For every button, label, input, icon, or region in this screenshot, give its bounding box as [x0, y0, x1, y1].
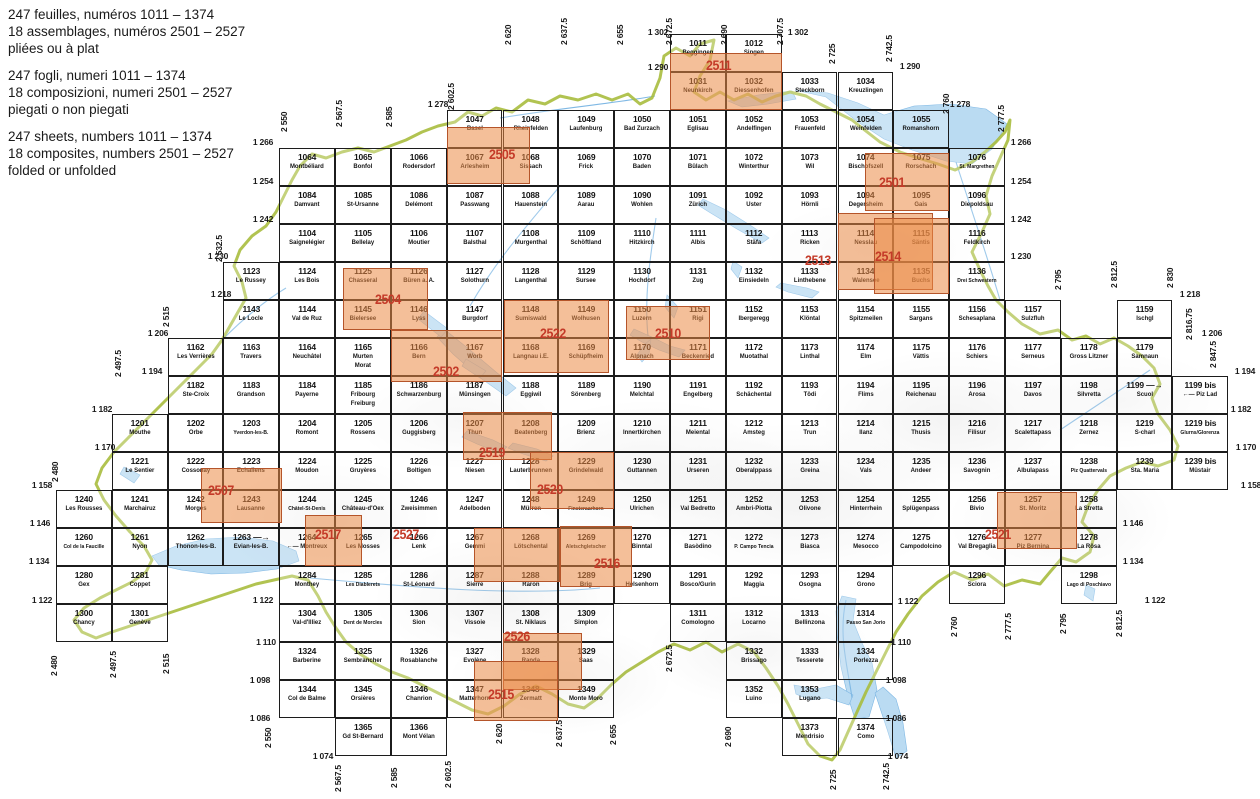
map-sheet-cell[interactable]: 1213Trun [782, 414, 838, 452]
map-sheet-cell[interactable]: 1183Grandson [223, 376, 279, 414]
map-sheet-cell[interactable]: 1176Schiers [949, 338, 1005, 376]
map-sheet-cell[interactable]: 1091Zürich [670, 186, 726, 224]
easting-coordinate-label: 2 655 [615, 25, 625, 45]
map-sheet-cell[interactable]: 1306Sion [391, 604, 447, 642]
sheet-number: 1253 [783, 495, 837, 504]
sheet-number: 1313 [783, 609, 837, 618]
sheet-name: Lugano [784, 696, 835, 703]
map-sheet-cell[interactable]: 1198Silvretta [1061, 376, 1117, 414]
sheet-number: 1218 [1062, 419, 1116, 428]
map-sheet-cell[interactable]: 1274Mesocco [838, 528, 894, 566]
easting-coordinate-label: 2 690 [719, 25, 729, 45]
northing-coordinate-label: 1 182 [80, 404, 124, 414]
sheet-number: 1246 [392, 495, 446, 504]
map-sheet-cell[interactable]: 1107Balsthal [447, 224, 503, 262]
map-sheet-cell[interactable]: 1241Marchairuz [112, 490, 168, 528]
map-sheet-cell[interactable]: 1209Brienz [558, 414, 614, 452]
map-sheet-cell[interactable]: 1175Vättis [893, 338, 949, 376]
sheet-number: 1086 [392, 191, 446, 200]
sheet-number: 1054 [839, 115, 893, 124]
map-sheet-cell[interactable]: 1109Schöftland [558, 224, 614, 262]
map-sheet-cell[interactable]: 1179Samnaun [1117, 338, 1173, 376]
sheet-number: 1374 [839, 723, 893, 732]
map-sheet-cell[interactable]: 1070Baden [614, 148, 670, 186]
map-sheet-cell[interactable]: 1127Solothurn [447, 262, 503, 300]
sheet-name: Orbe [170, 430, 221, 437]
map-sheet-cell[interactable]: 1104Saignelégier [279, 224, 335, 262]
map-sheet-cell[interactable]: 1112Stäfa [726, 224, 782, 262]
sheet-number: 1214 [839, 419, 893, 428]
sheet-name: Glurns/Glorenza [1177, 430, 1224, 437]
map-sheet-cell[interactable]: 1154Spitzmeilen [838, 300, 894, 338]
map-sheet-cell[interactable]: 1211Meiental [670, 414, 726, 452]
sheet-number: 1222 [169, 457, 223, 466]
map-sheet-cell[interactable]: 1089Aarau [558, 186, 614, 224]
sheet-number: 1066 [392, 153, 446, 162]
map-sheet-cell[interactable]: 1235Andeer [893, 452, 949, 490]
map-sheet-cell[interactable]: 1177Serneus [1005, 338, 1061, 376]
sheet-number: 1260 [57, 533, 111, 542]
map-sheet-cell[interactable]: 1250Ulrichen [614, 490, 670, 528]
map-sheet-cell[interactable]: 1189Sörenberg [558, 376, 614, 414]
sheet-name: Le Locle [226, 316, 277, 323]
sheet-name: Sursee [561, 278, 612, 285]
map-sheet-cell[interactable]: 1087Passwang [447, 186, 503, 224]
map-sheet-cell[interactable]: 1050Bad Zurzach [614, 110, 670, 148]
sheet-name: Müstair [1175, 468, 1226, 475]
map-sheet-cell[interactable]: 1192Schächental [726, 376, 782, 414]
composite-number: 2516 [594, 556, 620, 571]
sheet-number: 1191 [671, 381, 725, 390]
map-sheet-cell[interactable]: 1162Les Verrières [168, 338, 224, 376]
sheet-name: Thonon-les-B. [170, 544, 221, 551]
map-sheet-cell[interactable]: 1195Reichenau [893, 376, 949, 414]
sheet-number: 1093 [783, 191, 837, 200]
map-sheet-cell[interactable]: 1285Les Diablerets [335, 566, 391, 604]
northing-coordinate-label: 1 110 [244, 637, 288, 647]
map-sheet-cell[interactable]: 1071Bülach [670, 148, 726, 186]
map-sheet-cell[interactable]: 1218Zernez [1061, 414, 1117, 452]
sheet-name: Rodersdorf [393, 164, 444, 171]
sheet-number: 1204 [280, 419, 334, 428]
map-sheet-cell[interactable]: 1188Eggiwil [503, 376, 559, 414]
sheet-name: Amsteg [728, 430, 779, 437]
map-sheet-cell[interactable]: 1221Le Sentier [112, 452, 168, 490]
sheet-number: 1206 [392, 419, 446, 428]
sheet-name: Sulzfluh [1007, 316, 1058, 323]
map-sheet-cell[interactable]: 1204Romont [279, 414, 335, 452]
composite-box[interactable] [530, 452, 614, 509]
sheet-name: Val Bregaglia [951, 544, 1002, 551]
map-sheet-cell[interactable]: 1215Thusis [893, 414, 949, 452]
map-sheet-cell[interactable]: 1054Weinfelden [838, 110, 894, 148]
map-sheet-cell[interactable]: 1300Chancy [56, 604, 112, 642]
map-sheet-cell[interactable]: 1069Frick [558, 148, 614, 186]
map-sheet-cell[interactable]: 1110Hitzkirch [614, 224, 670, 262]
map-sheet-cell[interactable]: 1185FribourgFreiburg [335, 376, 391, 414]
map-sheet-cell[interactable]: 1312Locarno [726, 604, 782, 642]
map-sheet-cell[interactable]: 1247Adelboden [447, 490, 503, 528]
sheet-name: Guggisberg [393, 430, 444, 437]
sheet-number: 1298 [1062, 571, 1116, 580]
map-sheet-cell[interactable]: 1346Chanrion [391, 680, 447, 718]
sheet-name: Châtel-St-Denis [283, 506, 330, 513]
sheet-number: 1011 [671, 39, 725, 48]
easting-coordinate-label: 2 480 [50, 462, 60, 482]
composite-number: 2505 [489, 147, 515, 162]
sheet-number: 1133 [783, 267, 837, 276]
map-sheet-cell[interactable]: 1108Murgenthal [503, 224, 559, 262]
map-sheet-cell[interactable]: 1049Laufenburg [558, 110, 614, 148]
map-sheet-cell[interactable]: 1092Uster [726, 186, 782, 224]
sheet-name: Nyon [114, 544, 165, 551]
sheet-name: Lenk [393, 544, 444, 551]
sheet-name: Ibergeregg [728, 316, 779, 323]
northing-coordinate-label: 1 266 [241, 137, 285, 147]
map-sheet-cell[interactable]: 1106Moutier [391, 224, 447, 262]
sheet-name: S-charl [1119, 430, 1170, 437]
sheet-number: 1129 [559, 267, 613, 276]
sheet-name: Ste-Croix [170, 392, 221, 399]
sheet-name: Campodolcino [896, 544, 947, 551]
map-sheet-cell[interactable]: 1116Feldkirch [949, 224, 1005, 262]
map-sheet-cell[interactable]: 1205Rossens [335, 414, 391, 452]
sheet-number: 1072 [727, 153, 781, 162]
map-sheet-cell[interactable]: 1130Hochdorf [614, 262, 670, 300]
map-sheet-cell[interactable]: 1136Drei Schwestern [949, 262, 1005, 300]
map-sheet-cell[interactable]: 1233Greina [782, 452, 838, 490]
sheet-name: Le Russey [226, 278, 277, 285]
map-sheet-cell[interactable]: 1353Lugano [782, 680, 838, 718]
sheet-name: Winterthur [728, 164, 779, 171]
map-sheet-cell[interactable]: 1234Vals [838, 452, 894, 490]
map-sheet-cell[interactable]: 1326Rosablanche [391, 642, 447, 680]
map-sheet-cell[interactable]: 1333Tesserete [782, 642, 838, 680]
map-sheet-cell[interactable]: 1191Engelberg [670, 376, 726, 414]
sheet-number: 1108 [504, 229, 558, 238]
map-sheet-cell[interactable]: 1232Oberalppass [726, 452, 782, 490]
map-sheet-cell[interactable]: 1253Olivone [782, 490, 838, 528]
map-sheet-cell[interactable]: 1172Muotathal [726, 338, 782, 376]
map-sheet-cell[interactable]: 1111Albis [670, 224, 726, 262]
map-sheet-cell[interactable]: 1224Moudon [279, 452, 335, 490]
map-sheet-cell[interactable]: 1291Bosco/Gurin [670, 566, 726, 604]
sheet-number: 1033 [783, 77, 837, 86]
map-sheet-cell[interactable]: 1165MurtenMorat [335, 338, 391, 376]
map-sheet-cell[interactable]: 1199 —→Scuol [1117, 376, 1173, 414]
sheet-name: Einsiedeln [728, 278, 779, 285]
sheet-number: 1239 [1118, 457, 1172, 466]
easting-coordinate-label: 2 602.5 [446, 83, 456, 110]
sheet-name: Boltigen [393, 468, 444, 475]
sheet-name: Bonfol [337, 164, 388, 171]
map-sheet-cell[interactable]: 1153Klöntal [782, 300, 838, 338]
sheet-number: 1231 [671, 457, 725, 466]
map-sheet-cell[interactable]: 1155Sargans [893, 300, 949, 338]
map-sheet-cell[interactable]: 1132Einsiedeln [726, 262, 782, 300]
map-sheet-cell[interactable]: 1251Val Bedretto [670, 490, 726, 528]
map-sheet-cell[interactable]: 1096Diepoldsau [949, 186, 1005, 224]
northing-coordinate-label: 1 134 [17, 556, 61, 566]
sheet-number: 1210 [615, 419, 669, 428]
sheet-name: Wil [784, 164, 835, 171]
map-sheet-cell[interactable]: 1325Sembrancher [335, 642, 391, 680]
sheet-number: 1223 [224, 457, 278, 466]
sheet-number: 1352 [727, 685, 781, 694]
sheet-number: 1092 [727, 191, 781, 200]
map-sheet-cell[interactable]: 1088Hauenstein [503, 186, 559, 224]
map-sheet-cell[interactable]: 1156Schesaplana [949, 300, 1005, 338]
map-sheet-cell[interactable]: 1252Ambri-Piotta [726, 490, 782, 528]
composite-number: 2507 [208, 483, 234, 498]
map-sheet-cell[interactable]: 1344Col de Balme [279, 680, 335, 718]
map-sheet-cell[interactable]: 1214Ilanz [838, 414, 894, 452]
sheet-number: 1219 bis [1173, 419, 1227, 428]
sheet-number: 1217 [1006, 419, 1060, 428]
map-sheet-cell[interactable]: 1206Guggisberg [391, 414, 447, 452]
sheet-name: Sargans [896, 316, 947, 323]
map-sheet-cell[interactable]: 1184Payerne [279, 376, 335, 414]
sheet-number: 1157 [1006, 305, 1060, 314]
sheet-name: Greina [784, 468, 835, 475]
map-sheet-cell[interactable]: 1105Bellelay [335, 224, 391, 262]
sheet-name: Davos [1007, 392, 1058, 399]
sheet-name: Trun [784, 430, 835, 437]
map-sheet-cell[interactable]: 1239Sta. Maria [1117, 452, 1173, 490]
map-sheet-cell[interactable]: 1225Gruyères [335, 452, 391, 490]
map-sheet-cell[interactable]: 1292Maggia [726, 566, 782, 604]
sheet-number: 1236 [950, 457, 1004, 466]
map-sheet-cell[interactable]: 1190Melchtal [614, 376, 670, 414]
sheet-number: 1132 [727, 267, 781, 276]
map-sheet-cell[interactable]: 1131Zug [670, 262, 726, 300]
map-sheet-cell[interactable]: 1203Yverdon-les-B. [223, 414, 279, 452]
map-sheet-cell[interactable]: 1275Campodolcino [893, 528, 949, 566]
map-sheet-cell[interactable]: 1261Nyon [112, 528, 168, 566]
sheet-number: 1163 [224, 343, 278, 352]
sheet-number: 1291 [671, 571, 725, 580]
map-sheet-cell[interactable]: 1273Biasca [782, 528, 838, 566]
sheet-name: Mont Vélan [393, 734, 444, 741]
map-sheet-cell[interactable]: 1284Monthey [279, 566, 335, 604]
map-sheet-cell[interactable]: 1053Frauenfeld [782, 110, 838, 148]
map-sheet-cell[interactable]: 1076St. Margrethen [949, 148, 1005, 186]
sheet-number: 1174 [839, 343, 893, 352]
map-sheet-cell[interactable]: 1144Val de Ruz [279, 300, 335, 338]
sheet-name: Luino [728, 696, 779, 703]
map-sheet-cell[interactable]: 1324Barberine [279, 642, 335, 680]
sheet-name: Mouthe [114, 430, 165, 437]
map-sheet-cell[interactable]: 1263 —→Evian-les-B. [223, 528, 279, 566]
map-sheet-cell[interactable]: 1073Wil [782, 148, 838, 186]
sheet-name: Frick [561, 164, 612, 171]
map-sheet-cell[interactable]: 1152Ibergeregg [726, 300, 782, 338]
map-sheet-cell[interactable]: 1033Steckborn [782, 72, 838, 110]
sheet-number: 1327 [448, 647, 502, 656]
composite-box[interactable] [474, 528, 560, 582]
map-sheet-cell[interactable]: 1129Sursee [558, 262, 614, 300]
map-sheet-cell[interactable]: 1238Piz Quattervals [1061, 452, 1117, 490]
easting-coordinate-label: 2 812.5 [1109, 261, 1119, 288]
composite-number: 2517 [315, 527, 341, 542]
map-sheet-cell[interactable]: 1164Neuchâtel [279, 338, 335, 376]
map-sheet-cell[interactable]: 1174Elm [838, 338, 894, 376]
map-sheet-cell[interactable]: 1173Linthal [782, 338, 838, 376]
sheet-name: Thusis [896, 430, 947, 437]
sheet-name: Gex [58, 582, 109, 589]
map-sheet-cell[interactable]: 1239 bisMüstair [1172, 452, 1228, 490]
easting-coordinate-label: 2 620 [494, 724, 504, 744]
composite-box[interactable] [474, 661, 559, 721]
sheet-number: 1345 [336, 685, 390, 694]
map-sheet-cell[interactable]: 1084Damvant [279, 186, 335, 224]
map-sheet-cell[interactable]: 1196Arosa [949, 376, 1005, 414]
sheet-name: Les Diablerets [339, 582, 386, 589]
easting-coordinate-label: 2 742.5 [884, 35, 894, 62]
map-sheet-cell[interactable]: 1332Brissago [726, 642, 782, 680]
sheet-number: 1366 [392, 723, 446, 732]
sheet-name: Schächental [728, 392, 779, 399]
map-sheet-cell[interactable]: 1064Montbéliard [279, 148, 335, 186]
map-sheet-cell[interactable]: 1313Bellinzona [782, 604, 838, 642]
map-sheet-cell[interactable]: 1086Delémont [391, 186, 447, 224]
sheet-number: 1143 [224, 305, 278, 314]
sheet-name: Albulapass [1007, 468, 1058, 475]
easting-coordinate-label: 2 497.5 [108, 651, 118, 678]
map-sheet-cell[interactable]: 1231Urseren [670, 452, 726, 490]
map-sheet-cell[interactable]: 1230Guttannen [614, 452, 670, 490]
sheet-number: 1012 [727, 39, 781, 48]
sheet-name: Schesaplana [951, 316, 1002, 323]
sheet-name: Vals [840, 468, 891, 475]
sheet-name: Gross Litzner [1063, 354, 1114, 361]
map-sheet-cell[interactable]: 1093Hörnli [782, 186, 838, 224]
map-sheet-cell[interactable]: 1255Splügenpass [893, 490, 949, 528]
map-sheet-cell[interactable]: 1366Mont Vélan [391, 718, 447, 756]
map-sheet-cell[interactable]: 1305Dent de Morcles [335, 604, 391, 642]
map-sheet-cell[interactable]: 1216Filisur [949, 414, 1005, 452]
sheet-number: 1193 [783, 381, 837, 390]
map-sheet-cell[interactable]: 1294Grono [838, 566, 894, 604]
composite-number: 2511 [706, 58, 731, 73]
map-sheet-cell[interactable]: 1197Davos [1005, 376, 1061, 414]
sheet-name: Rosablanche [393, 658, 444, 665]
map-sheet-cell[interactable]: 1090Wohlen [614, 186, 670, 224]
sheet-number: 1251 [671, 495, 725, 504]
northing-coordinate-label: 1 254 [999, 176, 1043, 186]
map-sheet-cell[interactable]: 1307Vissoie [447, 604, 503, 642]
map-sheet-cell[interactable]: 1085St-Ursanne [335, 186, 391, 224]
sheet-number: 1113 [783, 229, 837, 238]
map-sheet-cell[interactable]: 1240Les Rousses [56, 490, 112, 528]
map-sheet-cell[interactable]: 1311Comologno [670, 604, 726, 642]
map-sheet-cell[interactable]: 1182Ste-Croix [168, 376, 224, 414]
map-sheet-cell[interactable]: 1226Boltigen [391, 452, 447, 490]
easting-coordinate-label: 2 725 [828, 770, 838, 790]
sheet-number: 1256 [950, 495, 1004, 504]
map-sheet-cell[interactable]: 1286St-Léonard [391, 566, 447, 604]
map-sheet-cell[interactable]: 1194Flims [838, 376, 894, 414]
map-sheet-cell[interactable]: 1373Mendrisio [782, 718, 838, 756]
sheet-number: 1096 [950, 191, 1004, 200]
map-sheet-cell[interactable]: 1262Thonon-les-B. [168, 528, 224, 566]
map-sheet-cell[interactable]: 1212Amsteg [726, 414, 782, 452]
map-sheet-cell[interactable]: 1066Rodersdorf [391, 148, 447, 186]
sheet-number: 1176 [950, 343, 1004, 352]
map-sheet-cell[interactable]: 1260Col de la Faucille [56, 528, 112, 566]
map-sheet-cell[interactable]: 1143Le Locle [223, 300, 279, 338]
map-sheet-cell[interactable]: 1272P. Campo Tencia [726, 528, 782, 566]
map-sheet-cell[interactable]: 1219 bisGlurns/Glorenza [1172, 414, 1228, 452]
map-sheet-cell[interactable]: 1124Les Bois [279, 262, 335, 300]
map-sheet-cell[interactable]: 1217Scalettapass [1005, 414, 1061, 452]
map-sheet-cell[interactable]: 1280Gex [56, 566, 112, 604]
map-sheet-cell[interactable]: 1055Romanshorn [893, 110, 949, 148]
sheet-number: 1212 [727, 419, 781, 428]
map-sheet-cell[interactable]: 1210Innertkirchen [614, 414, 670, 452]
easting-coordinate-label: 2 480 [49, 656, 59, 676]
sheet-name: Val-d'Illiez [282, 620, 333, 627]
map-sheet-cell[interactable]: 1052Andelfingen [726, 110, 782, 148]
map-sheet-cell[interactable]: 1236Savognin [949, 452, 1005, 490]
sheet-number: 1159 [1118, 305, 1172, 314]
map-sheet-cell[interactable]: 1352Luino [726, 680, 782, 718]
map-sheet-cell[interactable]: 1271Basòdino [670, 528, 726, 566]
map-sheet-cell[interactable]: 1051Eglisau [670, 110, 726, 148]
map-sheet-cell[interactable]: 1281Coppet [112, 566, 168, 604]
map-sheet-cell[interactable]: 1157Sulzfluh [1005, 300, 1061, 338]
sheet-name: Val de Ruz [282, 316, 333, 323]
map-sheet-cell[interactable]: 1246Zweisimmen [391, 490, 447, 528]
map-sheet-cell[interactable]: 1293Osogna [782, 566, 838, 604]
map-sheet-cell[interactable]: 1193Tödi [782, 376, 838, 414]
sheet-name: Samnaun [1119, 354, 1170, 361]
northing-coordinate-label: 1 086 [874, 713, 918, 723]
map-sheet-cell[interactable]: 1072Winterthur [726, 148, 782, 186]
map-sheet-cell[interactable]: 1345Orsières [335, 680, 391, 718]
map-sheet-cell[interactable]: 1159Ischgl [1117, 300, 1173, 338]
sheet-number: 1199 bis [1173, 381, 1227, 390]
map-sheet-cell[interactable]: 1128Langenthal [503, 262, 559, 300]
easting-coordinate-label: 2 672.5 [664, 645, 674, 672]
map-sheet-cell[interactable]: 1065Bonfol [335, 148, 391, 186]
map-sheet-cell[interactable]: 1163Travers [223, 338, 279, 376]
map-sheet-cell[interactable]: 1178Gross Litzner [1061, 338, 1117, 376]
sheet-name: Basòdino [672, 544, 723, 551]
sheet-name: Kreuzlingen [840, 88, 891, 95]
sheet-name: Gd St-Bernard [337, 734, 388, 741]
map-sheet-cell[interactable]: 1254Hinterrhein [838, 490, 894, 528]
map-sheet-cell[interactable]: 1219S-charl [1117, 414, 1173, 452]
map-sheet-cell[interactable]: 1301Genève [112, 604, 168, 642]
sheet-name-line2: Morat [337, 363, 388, 370]
northing-coordinate-label: 1 206 [136, 328, 180, 338]
sheet-number: 1254 [839, 495, 893, 504]
map-sheet-cell[interactable]: 1296Sciora [949, 566, 1005, 604]
sheet-number: 1047 [448, 115, 502, 124]
sheet-number: 1104 [280, 229, 334, 238]
sheet-name: Como [840, 734, 891, 741]
map-sheet-cell[interactable]: 1034Kreuzlingen [838, 72, 894, 110]
sheet-number: 1250 [615, 495, 669, 504]
map-sheet-cell[interactable]: 1237Albulapass [1005, 452, 1061, 490]
sheet-number: 1219 [1118, 419, 1172, 428]
composite-box[interactable] [865, 153, 949, 212]
map-sheet-cell[interactable]: 1298Lago di Poschiavo [1061, 566, 1117, 604]
sheet-name: Solothurn [449, 278, 500, 285]
map-sheet-cell[interactable]: 1202Orbe [168, 414, 224, 452]
sheet-index-map: 1011Beggingen1012Singen1031Neunkirch1032… [0, 0, 1260, 799]
